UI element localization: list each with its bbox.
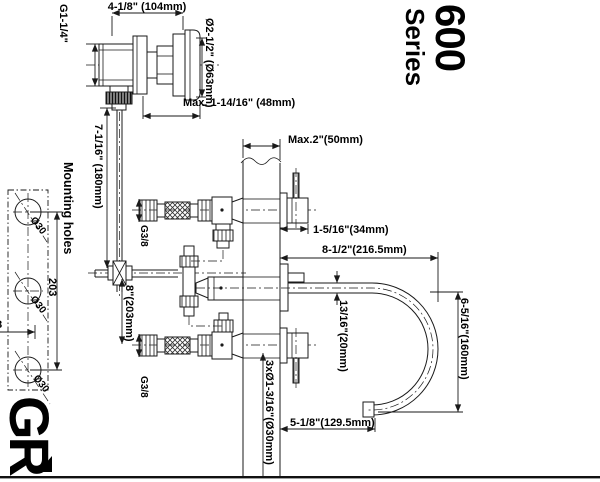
drawing-page: 600 Series GR [0,0,600,482]
spout-drop-dim: 5-1/8"(129.5mm) [290,417,375,429]
handle-projection-dim: 1-5/16"(34mm) [313,224,389,236]
bottom-border [0,476,600,478]
model-number: 600 [427,4,474,71]
hole-diameter-1: Ø30 [28,215,49,237]
brand-logo: GR [0,396,61,477]
valve-spacing-dim: 8"(203mm) [123,285,135,342]
spout-outlet [363,402,374,417]
valve-width-dim: 4-1/8" (104mm) [108,1,187,13]
hole-spacing-dim: 203 [46,278,58,296]
bottom-valve-assembly: G3/8 [132,313,316,398]
mounting-holes-label: Mounting holes [61,162,75,254]
series-title: 600 Series [400,4,474,86]
installation-view: Max.2"(50mm) G3/8 [88,134,470,477]
knob-diameter-dim: Ø2-1/2" (Ø63mm) [203,18,215,108]
technical-drawing: 600 Series GR [0,0,600,482]
wall-holes-dim: 3xØ1-3/16"(Ø30mm) [263,360,275,465]
spout-tube-dia-dim: 13/16"(20mm) [337,300,349,372]
series-label: Series [400,8,430,86]
spout-reach-dim: 8-1/2"(216.5mm) [322,244,407,256]
flex-hose-top [165,202,190,219]
valve-knob [185,30,200,100]
flex-hose-bottom [165,337,190,354]
riser-nut [106,92,132,104]
shutoff-valve-detail: 4-1/8" (104mm) G1-1/4" Ø2-1/2" (Ø63mm) M… [57,1,296,296]
hose-thread-top-label: G3/8 [138,225,149,247]
spout-height-dim: 6-5/16"(160mm) [458,298,470,380]
riser-height-dim: 7-1/16" (180mm) [92,124,104,209]
hose-thread-bottom-label: G3/8 [138,376,149,398]
edge-dim-partial: 8 [0,319,2,331]
hole-diameter-2: Ø30 [28,294,49,316]
wall-max-dim: Max.2"(50mm) [288,134,363,146]
inlet-thread-label: G1-1/4" [57,4,69,43]
mounting-holes-detail: Mounting holes Ø30 Ø30 Ø30 203 8 [0,162,75,404]
wall-break-line [241,158,281,165]
